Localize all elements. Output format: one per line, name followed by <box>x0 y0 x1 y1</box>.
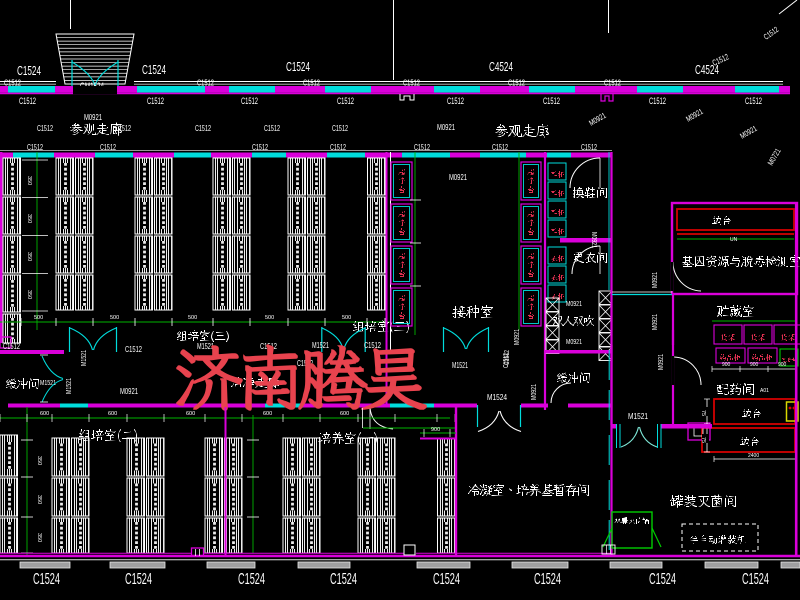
svg-text:600: 600 <box>40 411 49 417</box>
svg-text:600: 600 <box>108 411 117 417</box>
svg-text:75: 75 <box>700 437 706 443</box>
svg-text:M0921: M0921 <box>566 339 582 346</box>
svg-text:C1524: C1524 <box>534 571 561 588</box>
svg-text:600: 600 <box>263 411 272 417</box>
svg-text:C1512: C1512 <box>303 78 320 88</box>
svg-text:UN: UN <box>730 237 738 243</box>
svg-text:C1524: C1524 <box>142 63 166 77</box>
svg-text:350: 350 <box>26 214 32 223</box>
svg-text:M0921: M0921 <box>650 314 659 330</box>
svg-text:M0921: M0921 <box>84 113 102 122</box>
svg-text:C1512: C1512 <box>115 123 131 133</box>
svg-text:350: 350 <box>36 456 42 465</box>
svg-text:M0921: M0921 <box>449 173 467 182</box>
svg-text:C1524: C1524 <box>433 571 460 588</box>
svg-text:500: 500 <box>110 315 119 321</box>
svg-text:C1512: C1512 <box>364 341 381 350</box>
svg-text:M0921: M0921 <box>566 301 582 308</box>
svg-text:C1512: C1512 <box>195 123 211 133</box>
svg-text:C1524: C1524 <box>238 571 265 588</box>
svg-text:M1524: M1524 <box>487 393 507 402</box>
svg-text:500: 500 <box>265 315 274 321</box>
svg-text:350: 350 <box>26 252 32 261</box>
svg-text:C1524: C1524 <box>33 571 60 588</box>
svg-text:500: 500 <box>34 315 43 321</box>
svg-text:M1521: M1521 <box>312 341 329 350</box>
svg-text:M1521: M1521 <box>452 361 468 370</box>
svg-text:C1524: C1524 <box>286 60 310 74</box>
svg-text:M0921: M0921 <box>656 354 665 370</box>
svg-text:900: 900 <box>431 427 440 433</box>
svg-text:M1521: M1521 <box>40 378 56 387</box>
svg-text:C1512: C1512 <box>649 96 666 106</box>
svg-text:C1512: C1512 <box>403 78 420 88</box>
svg-text:C1512: C1512 <box>37 123 53 133</box>
svg-text:C1512: C1512 <box>337 96 354 106</box>
svg-text:C1512: C1512 <box>604 78 621 88</box>
svg-text:C1512: C1512 <box>745 96 762 106</box>
svg-text:900: 900 <box>778 362 787 368</box>
svg-text:C1524: C1524 <box>125 571 152 588</box>
svg-text:C1512: C1512 <box>4 78 21 88</box>
svg-text:C1524: C1524 <box>17 64 41 78</box>
svg-text:M1521: M1521 <box>628 412 648 421</box>
svg-text:M0921: M0921 <box>120 387 138 396</box>
svg-text:A01: A01 <box>760 388 769 394</box>
svg-text:M1521: M1521 <box>79 350 88 366</box>
svg-text:350: 350 <box>36 495 42 504</box>
svg-text:C1512: C1512 <box>3 341 20 351</box>
svg-text:C1512: C1512 <box>19 96 36 106</box>
svg-text:M0921: M0921 <box>529 384 538 400</box>
svg-text:C1512: C1512 <box>147 96 164 106</box>
svg-text:M0921: M0921 <box>512 329 521 345</box>
svg-text:C1524: C1524 <box>742 571 769 588</box>
svg-text:75: 75 <box>700 410 706 416</box>
svg-text:C1512: C1512 <box>125 345 142 354</box>
svg-text:2400: 2400 <box>748 453 759 459</box>
svg-text:C1512: C1512 <box>332 123 348 133</box>
svg-text:C1512: C1512 <box>197 78 214 88</box>
svg-text:C1512: C1512 <box>264 123 280 133</box>
svg-text:600: 600 <box>186 411 195 417</box>
svg-text:350: 350 <box>36 533 42 542</box>
svg-text:900: 900 <box>750 362 759 368</box>
svg-text:M1521: M1521 <box>64 378 73 394</box>
svg-text:C1512: C1512 <box>543 96 560 106</box>
svg-text:350: 350 <box>26 290 32 299</box>
svg-text:350: 350 <box>26 176 32 185</box>
svg-text:M0921: M0921 <box>650 272 659 288</box>
svg-text:C1512: C1512 <box>241 96 258 106</box>
svg-text:600: 600 <box>340 411 349 417</box>
svg-text:M0921: M0921 <box>437 123 455 132</box>
svg-text:C1512: C1512 <box>447 96 464 106</box>
svg-text:C4524: C4524 <box>489 60 513 74</box>
svg-text:500: 500 <box>188 315 197 321</box>
svg-text:C1512: C1512 <box>508 78 525 88</box>
svg-text:900: 900 <box>722 362 731 368</box>
svg-text:C1512: C1512 <box>502 350 511 365</box>
svg-text:500: 500 <box>342 315 351 321</box>
svg-text:C1524: C1524 <box>649 571 676 588</box>
svg-text:C1524: C1524 <box>330 571 357 588</box>
